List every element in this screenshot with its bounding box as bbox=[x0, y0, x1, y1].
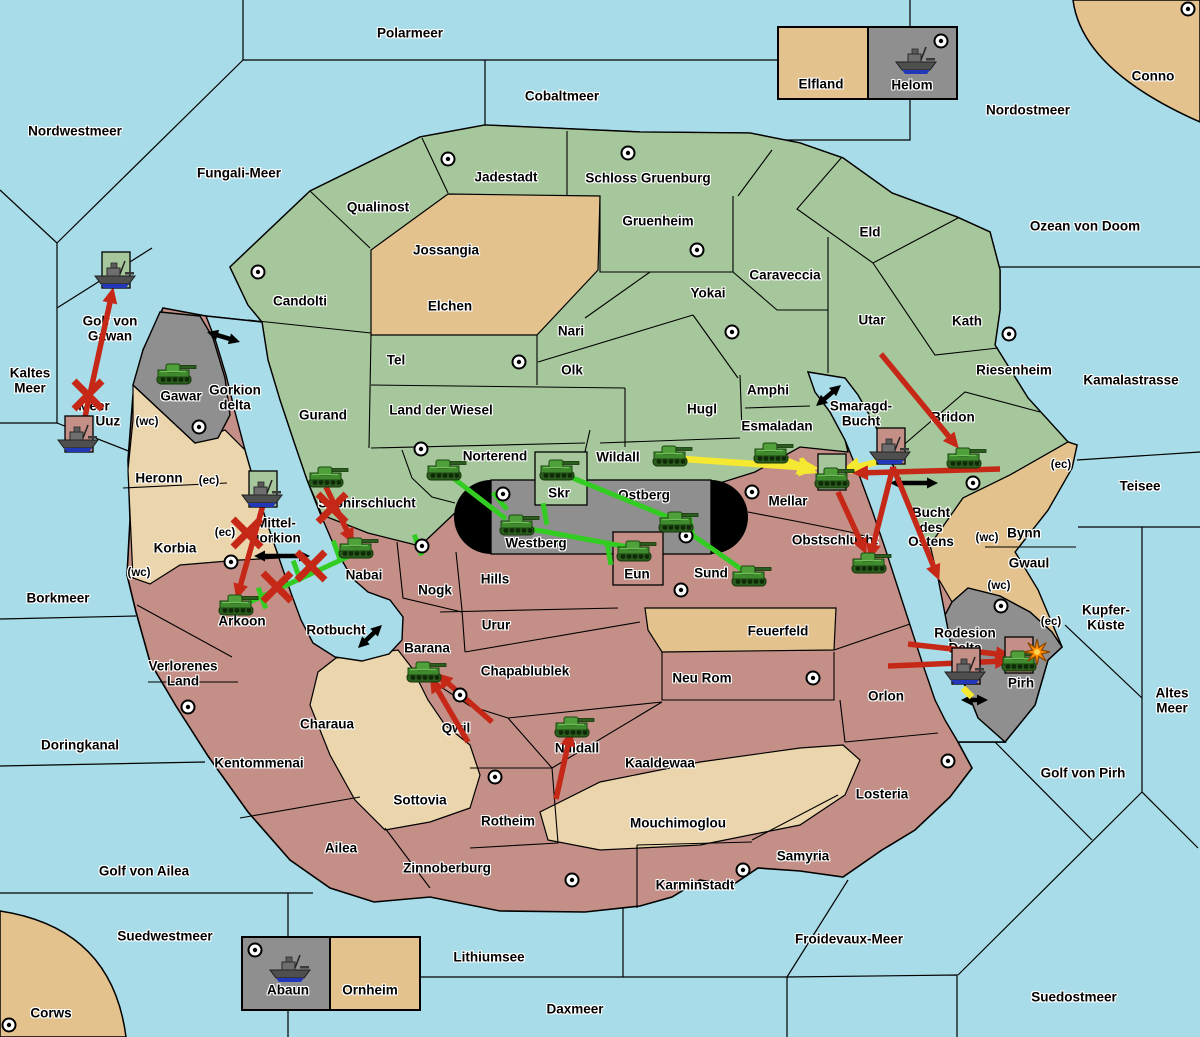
city-marker bbox=[454, 689, 467, 702]
city-marker bbox=[416, 540, 429, 553]
transport-link-arrow bbox=[207, 330, 240, 344]
unit-norterend-tank[interactable] bbox=[427, 460, 466, 480]
city-marker bbox=[513, 356, 526, 369]
city-marker bbox=[193, 421, 206, 434]
city-marker bbox=[1182, 3, 1195, 16]
unit-abaun-ship[interactable] bbox=[270, 955, 310, 982]
unit-mittelgorkion-ship[interactable] bbox=[242, 471, 282, 507]
unit-barana-tank[interactable] bbox=[407, 662, 446, 682]
city-marker bbox=[225, 556, 238, 569]
unit-arkoon-tank[interactable] bbox=[219, 595, 258, 615]
city-marker bbox=[726, 326, 739, 339]
city-marker bbox=[807, 672, 820, 685]
green-tick-mark bbox=[543, 503, 547, 525]
city-marker bbox=[995, 600, 1008, 613]
unit-bridon-tank[interactable] bbox=[947, 448, 986, 468]
red-attack-arrow bbox=[866, 467, 893, 560]
unit-nabai-tank[interactable] bbox=[339, 538, 378, 558]
units-and-orders bbox=[0, 0, 1200, 1037]
city-marker bbox=[675, 584, 688, 597]
transport-link-arrow bbox=[961, 695, 988, 706]
green-attack-arrow bbox=[563, 474, 668, 517]
city-marker bbox=[622, 147, 635, 160]
city-marker bbox=[249, 944, 262, 957]
unit-helom-ship[interactable] bbox=[896, 47, 936, 74]
city-marker bbox=[489, 771, 502, 784]
transport-link-arrow bbox=[358, 625, 382, 648]
city-marker bbox=[942, 755, 955, 768]
city-marker bbox=[746, 486, 759, 499]
city-marker bbox=[497, 488, 510, 501]
city-marker bbox=[691, 244, 704, 257]
city-marker bbox=[442, 153, 455, 166]
unit-skr-tank[interactable] bbox=[540, 460, 579, 480]
explosion-icon bbox=[1024, 639, 1050, 665]
city-marker bbox=[967, 477, 980, 490]
yellow-attack-arrow bbox=[963, 688, 972, 697]
unit-saphirschlucht-tank[interactable] bbox=[309, 467, 348, 487]
unit-gawan-ship[interactable] bbox=[95, 252, 135, 288]
city-marker bbox=[566, 874, 579, 887]
city-marker bbox=[182, 701, 195, 714]
city-marker bbox=[737, 864, 750, 877]
green-tick-mark bbox=[607, 543, 611, 565]
city-marker bbox=[415, 443, 428, 456]
red-attack-arrow bbox=[556, 730, 575, 799]
unit-nilldall-tank[interactable] bbox=[555, 717, 594, 737]
unit-uuz-ship[interactable] bbox=[58, 416, 98, 452]
transport-link-arrow bbox=[816, 385, 841, 406]
city-marker bbox=[3, 1019, 16, 1032]
unit-mellar-tank[interactable] bbox=[815, 454, 854, 490]
unit-ostens-ship[interactable] bbox=[870, 428, 910, 464]
green-attack-arrow bbox=[520, 527, 628, 547]
city-marker bbox=[935, 35, 948, 48]
city-marker bbox=[252, 266, 265, 279]
unit-obstschlucht-tank[interactable] bbox=[852, 553, 891, 573]
unit-esmaladan-tank[interactable] bbox=[754, 443, 793, 463]
red-attack-arrow bbox=[838, 492, 867, 554]
game-map-stage: PolarmeerNordwestmeerFungali-MeerCobaltm… bbox=[0, 0, 1200, 1037]
unit-gawar-tank[interactable] bbox=[157, 364, 196, 384]
city-marker bbox=[1003, 328, 1016, 341]
